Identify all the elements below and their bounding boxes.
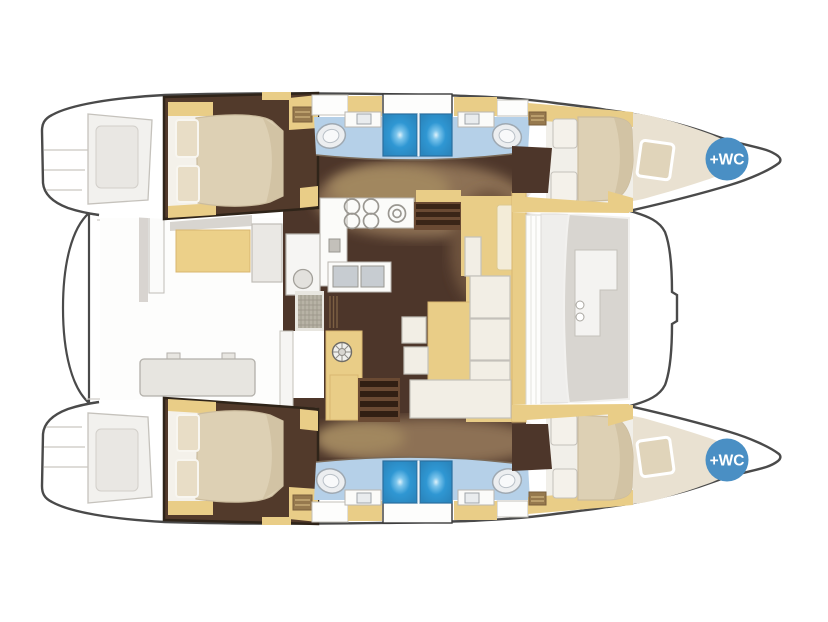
svg-text:+WC: +WC bbox=[710, 152, 745, 169]
svg-text:+WC: +WC bbox=[710, 453, 745, 470]
